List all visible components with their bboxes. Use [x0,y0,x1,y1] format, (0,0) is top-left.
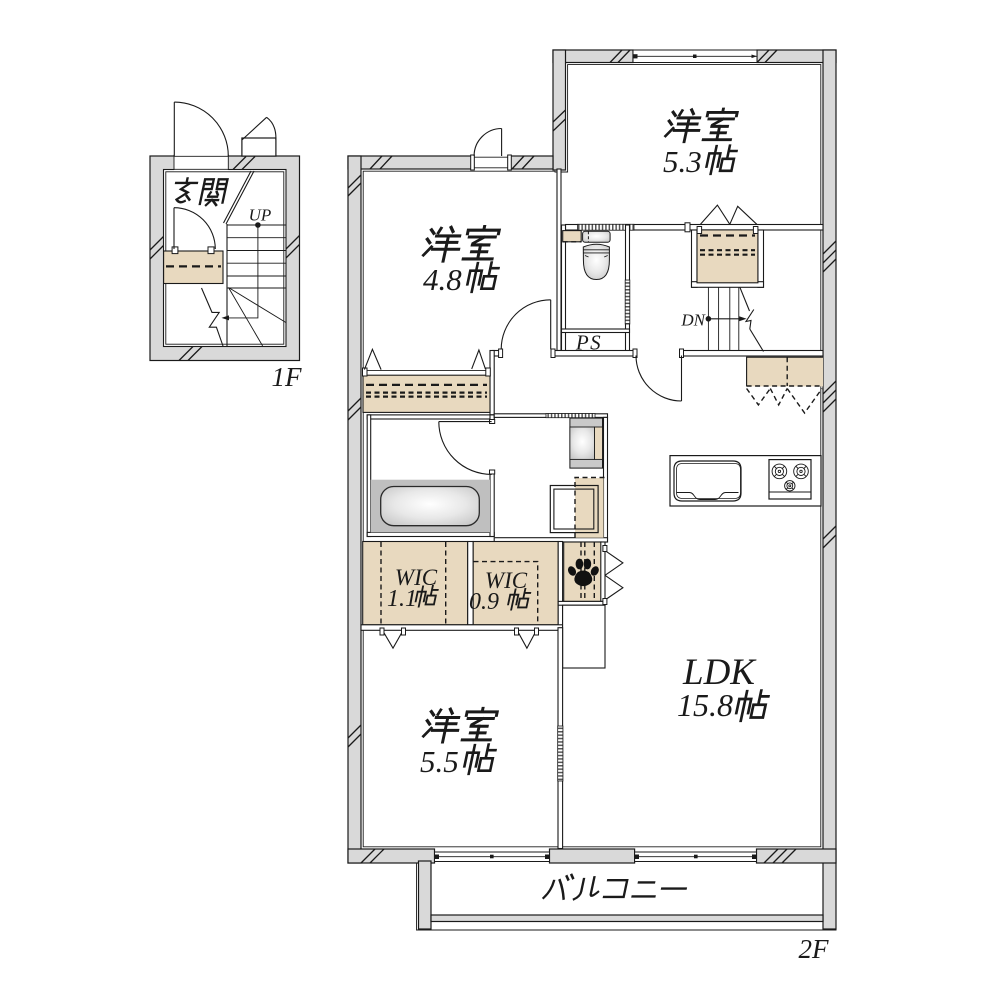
svg-text:UP: UP [249,206,272,225]
svg-text:5.3: 5.3 [663,144,702,179]
svg-text:DN: DN [680,311,706,330]
svg-text:5.5: 5.5 [420,744,459,779]
svg-text:1F: 1F [272,362,303,392]
svg-text:1.1: 1.1 [387,586,417,612]
svg-text:4.8: 4.8 [423,262,462,297]
svg-text:0.9: 0.9 [469,589,499,615]
svg-text:2F: 2F [799,934,830,964]
svg-text:15.8: 15.8 [677,687,733,723]
